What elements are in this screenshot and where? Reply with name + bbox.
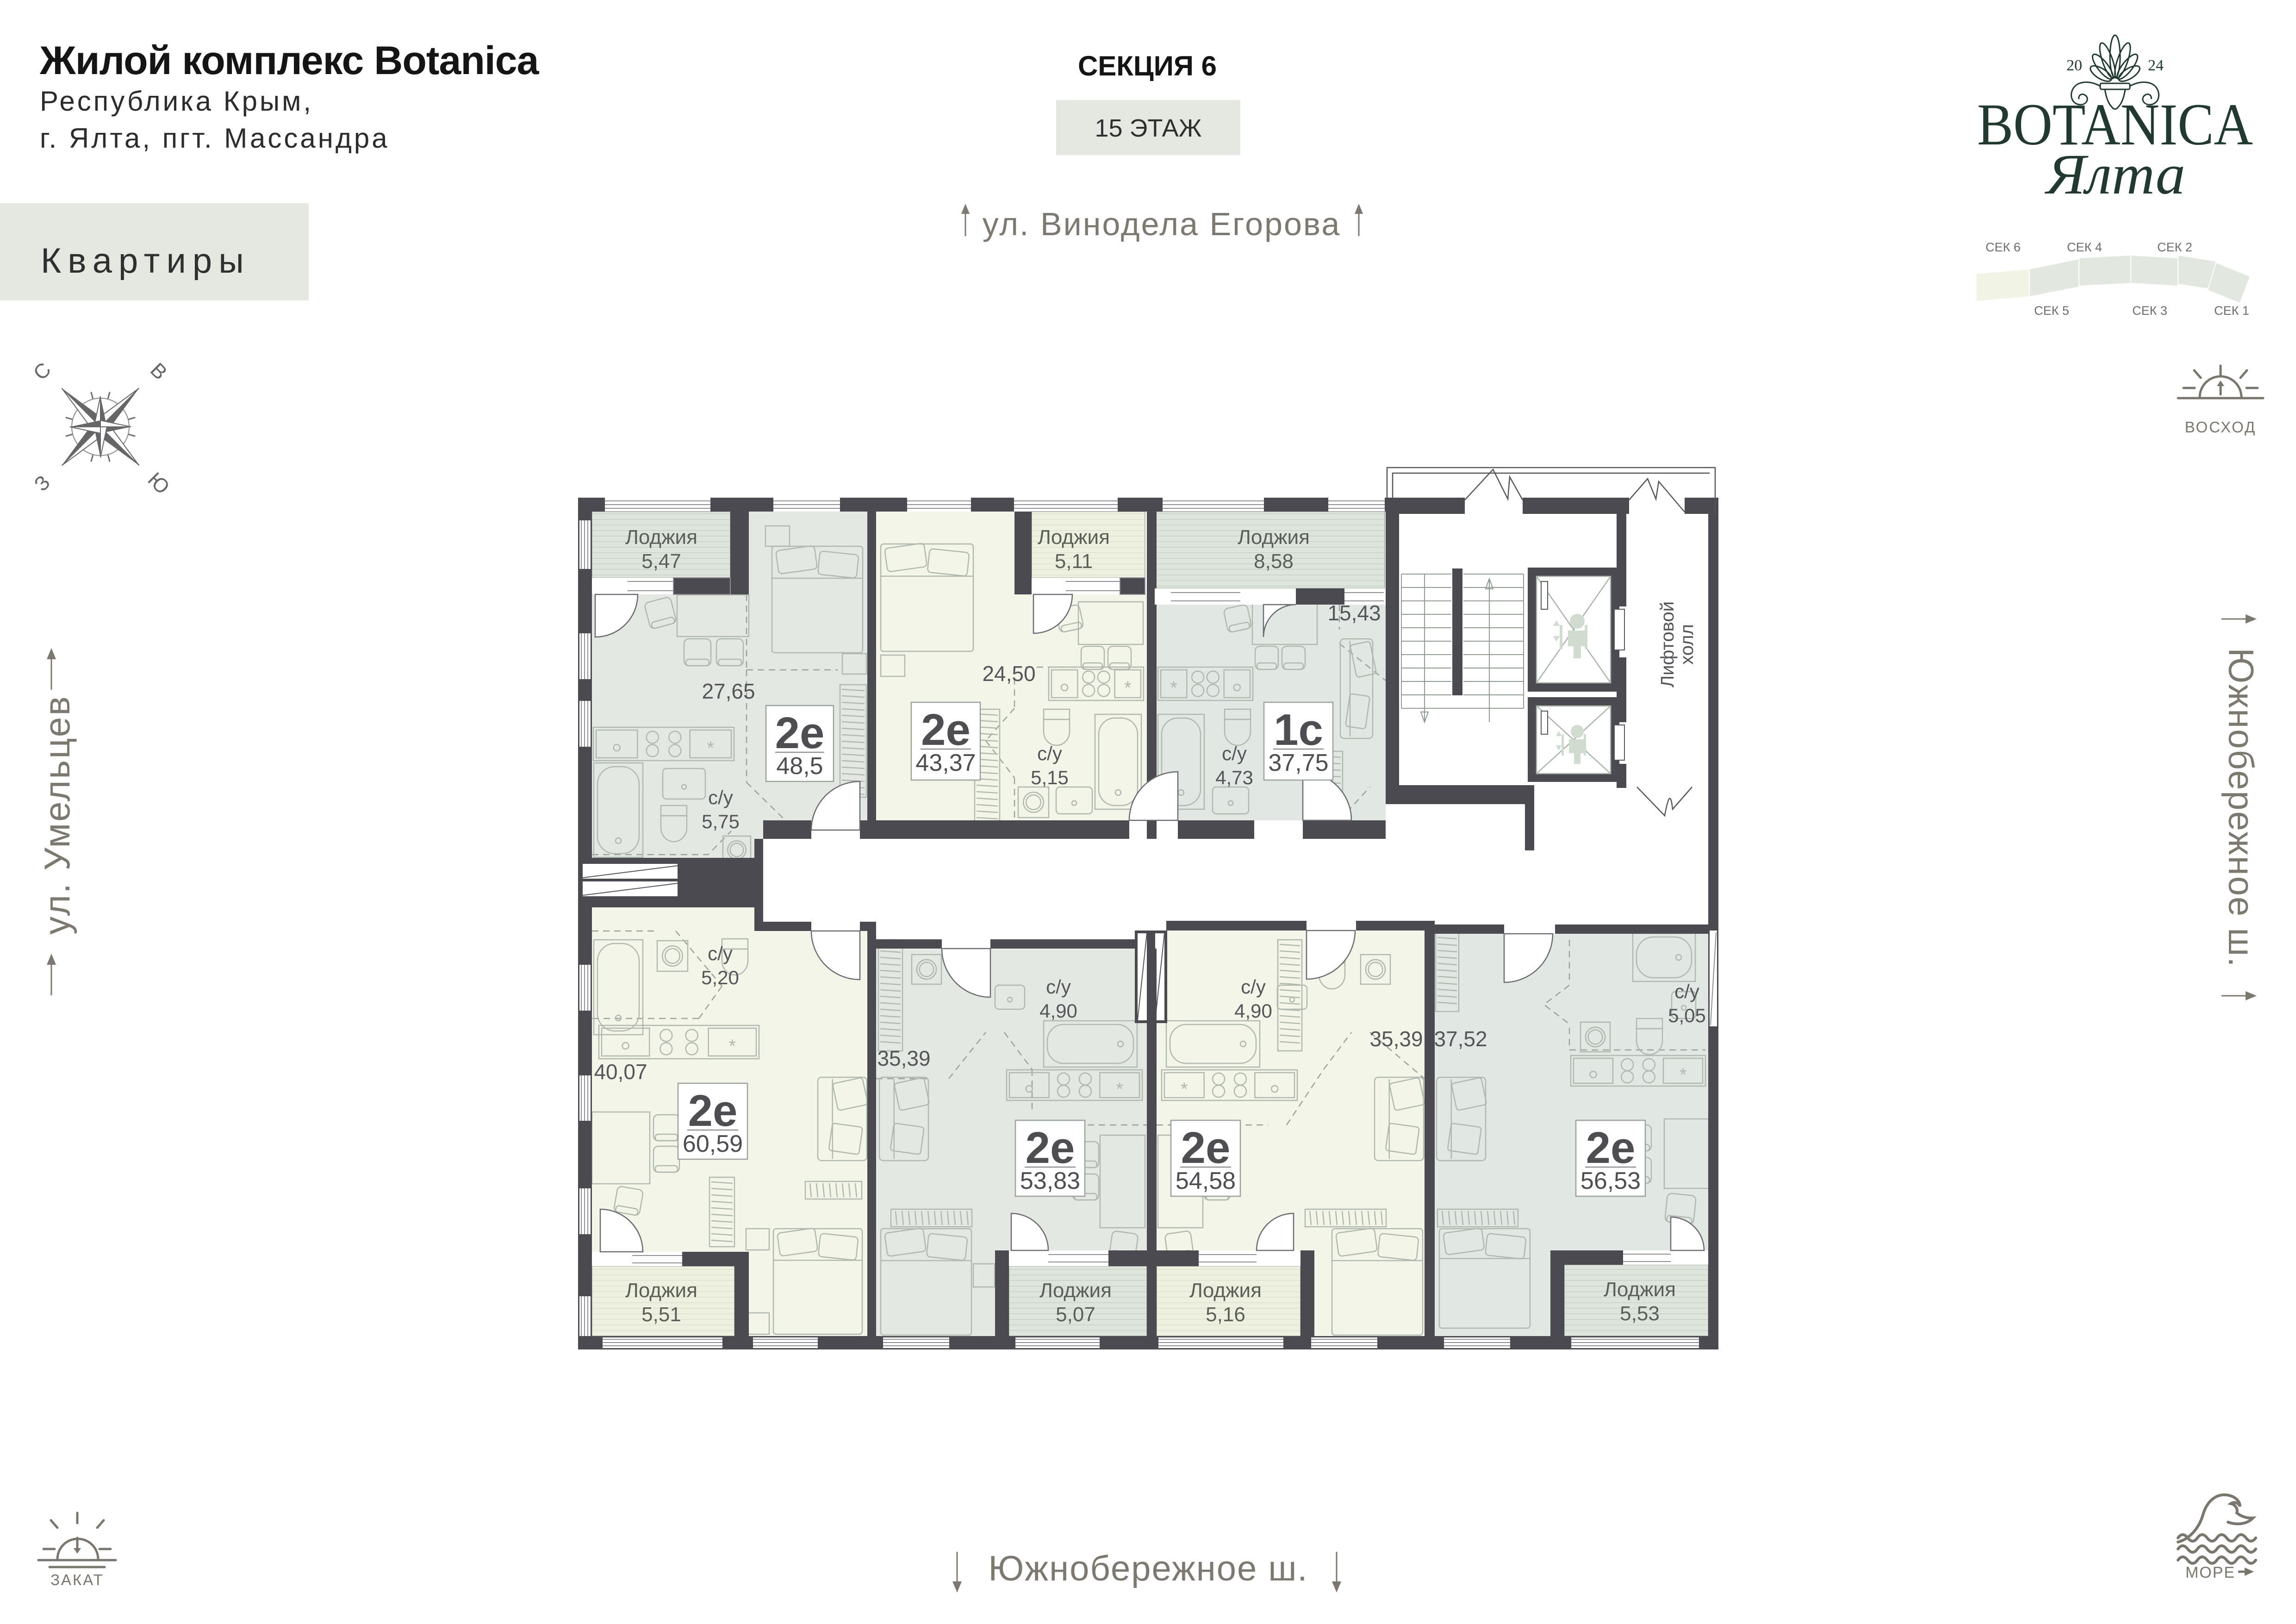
svg-text:4,90: 4,90 [1039, 1000, 1077, 1022]
svg-text:24: 24 [2148, 57, 2164, 74]
svg-text:5,53: 5,53 [1620, 1302, 1660, 1325]
svg-text:с/у: с/у [1674, 981, 1699, 1002]
svg-text:8,58: 8,58 [1254, 550, 1294, 573]
svg-text:5,15: 5,15 [1031, 767, 1069, 788]
svg-text:35,39: 35,39 [1369, 1027, 1423, 1051]
svg-text:15,43: 15,43 [1327, 601, 1381, 625]
svg-text:Квартиры: Квартиры [41, 241, 250, 281]
svg-text:4,90: 4,90 [1234, 1000, 1272, 1022]
svg-text:2е: 2е [921, 705, 971, 755]
svg-text:4,73: 4,73 [1215, 767, 1253, 788]
svg-text:54,58: 54,58 [1176, 1168, 1236, 1194]
svg-text:27,65: 27,65 [702, 679, 755, 703]
svg-text:СЕК 4: СЕК 4 [2067, 240, 2102, 254]
svg-text:2е: 2е [775, 708, 825, 758]
svg-text:*: * [1181, 1079, 1188, 1099]
svg-text:Южнобережное ш.: Южнобережное ш. [2221, 648, 2260, 968]
svg-text:35,39: 35,39 [877, 1046, 930, 1070]
svg-text:Лоджия: Лоджия [1604, 1278, 1676, 1301]
svg-text:Лоджия: Лоджия [1238, 526, 1310, 549]
svg-text:*: * [1170, 678, 1177, 698]
svg-text:60,59: 60,59 [683, 1131, 743, 1157]
svg-text:5,11: 5,11 [1055, 550, 1093, 573]
svg-text:*: * [1680, 1065, 1687, 1085]
svg-text:5,05: 5,05 [1668, 1005, 1706, 1026]
svg-text:20: 20 [2066, 57, 2082, 74]
svg-text:В: В [146, 359, 171, 384]
svg-text:с/у: с/у [1241, 976, 1266, 998]
svg-text:56,53: 56,53 [1580, 1168, 1641, 1194]
svg-text:Жилой комплекс Botanica: Жилой комплекс Botanica [39, 38, 540, 83]
svg-text:Лоджия: Лоджия [1039, 1279, 1112, 1302]
svg-text:СЕК 5: СЕК 5 [2034, 304, 2069, 318]
svg-text:Лоджия: Лоджия [1189, 1279, 1262, 1302]
svg-text:15 ЭТАЖ: 15 ЭТАЖ [1095, 114, 1202, 142]
svg-text:5,07: 5,07 [1056, 1303, 1095, 1326]
svg-text:Республика Крым,: Республика Крым, [40, 86, 313, 117]
svg-text:5,47: 5,47 [641, 550, 681, 573]
svg-text:1с: 1с [1274, 705, 1323, 755]
svg-text:2е: 2е [1586, 1123, 1636, 1173]
svg-text:Лифтовой: Лифтовой [1657, 601, 1678, 687]
svg-text:*: * [729, 1036, 736, 1056]
svg-text:2е: 2е [688, 1086, 738, 1136]
svg-text:*: * [1116, 1079, 1123, 1099]
svg-text:24,50: 24,50 [982, 662, 1035, 686]
svg-text:37,75: 37,75 [1268, 750, 1328, 776]
svg-text:Лоджия: Лоджия [625, 1279, 697, 1302]
svg-text:53,83: 53,83 [1020, 1168, 1080, 1194]
svg-text:с/у: с/у [708, 943, 733, 964]
svg-text:с/у: с/у [1222, 743, 1247, 764]
svg-text:37,52: 37,52 [1434, 1027, 1487, 1051]
svg-text:МОРЕ: МОРЕ [2185, 1564, 2235, 1581]
svg-text:*: * [1124, 678, 1132, 698]
svg-text:с/у: с/у [1046, 976, 1071, 998]
svg-text:Ю: Ю [143, 468, 174, 499]
svg-text:г. Ялта, пгт. Массандра: г. Ялта, пгт. Массандра [40, 123, 390, 154]
svg-text:СЕК 2: СЕК 2 [2157, 240, 2192, 254]
svg-text:2е: 2е [1026, 1123, 1075, 1173]
svg-text:5,75: 5,75 [702, 811, 740, 832]
svg-text:с/у: с/у [1037, 743, 1062, 764]
svg-text:Лоджия: Лоджия [625, 526, 697, 549]
svg-text:ЗАКАТ: ЗАКАТ [50, 1571, 104, 1588]
svg-text:40,07: 40,07 [594, 1060, 647, 1084]
svg-text:с/у: с/у [708, 787, 733, 808]
svg-text:5,51: 5,51 [641, 1303, 681, 1326]
svg-text:СЕКЦИЯ 6: СЕКЦИЯ 6 [1078, 50, 1217, 81]
svg-text:2е: 2е [1181, 1123, 1231, 1173]
svg-text:СЕК 3: СЕК 3 [2132, 304, 2167, 318]
svg-text:З: З [30, 471, 55, 496]
svg-text:43,37: 43,37 [915, 750, 976, 776]
svg-text:ВОСХОД: ВОСХОД [2185, 418, 2257, 436]
svg-text:5,20: 5,20 [701, 967, 739, 988]
svg-text:48,5: 48,5 [776, 753, 823, 780]
svg-text:ул. Умельцев: ул. Умельцев [37, 695, 77, 934]
svg-text:Лоджия: Лоджия [1038, 526, 1110, 549]
svg-text:СЕК 1: СЕК 1 [2214, 304, 2249, 318]
svg-text:5,16: 5,16 [1206, 1303, 1245, 1326]
svg-text:*: * [707, 738, 715, 758]
svg-text:Южнобережное ш.: Южнобережное ш. [988, 1549, 1308, 1588]
svg-text:С: С [29, 358, 56, 385]
svg-text:холл: холл [1677, 624, 1697, 665]
svg-text:Ялта: Ялта [2044, 143, 2185, 206]
svg-text:ул. Винодела Егорова: ул. Винодела Егорова [983, 206, 1341, 242]
svg-text:СЕК 6: СЕК 6 [1985, 240, 2021, 254]
